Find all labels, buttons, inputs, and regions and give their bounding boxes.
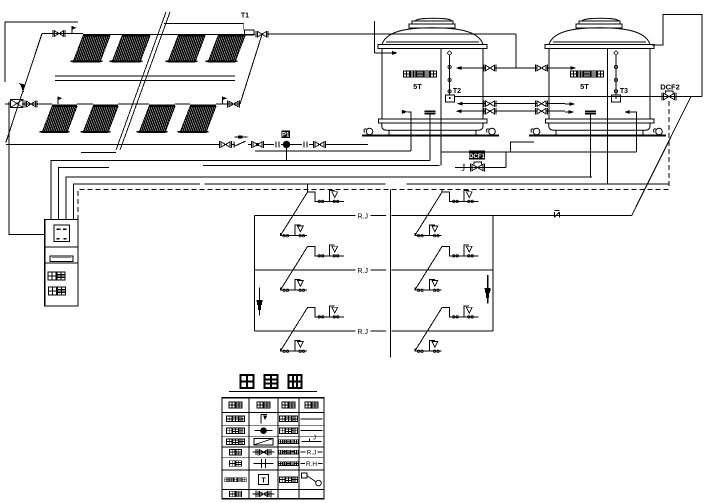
svg-text:5T: 5T <box>413 82 422 91</box>
svg-text:J: J <box>462 163 466 174</box>
svg-text:DCF1: DCF1 <box>469 154 485 160</box>
svg-text:T1: T1 <box>241 13 249 20</box>
svg-text:T: T <box>261 478 266 485</box>
svg-text:P1: P1 <box>282 133 290 139</box>
svg-text:T3: T3 <box>620 88 628 95</box>
svg-text:DCF2: DCF2 <box>660 83 680 92</box>
svg-text:R.H: R.H <box>306 461 318 468</box>
svg-text:J: J <box>313 436 316 442</box>
svg-text:R.J: R.J <box>358 213 369 220</box>
svg-text:R.J: R.J <box>358 329 369 336</box>
svg-text:R.J: R.J <box>358 268 369 275</box>
svg-text:T2: T2 <box>453 88 461 95</box>
svg-text:R.J: R.J <box>307 450 317 457</box>
svg-text:5T: 5T <box>580 82 589 91</box>
